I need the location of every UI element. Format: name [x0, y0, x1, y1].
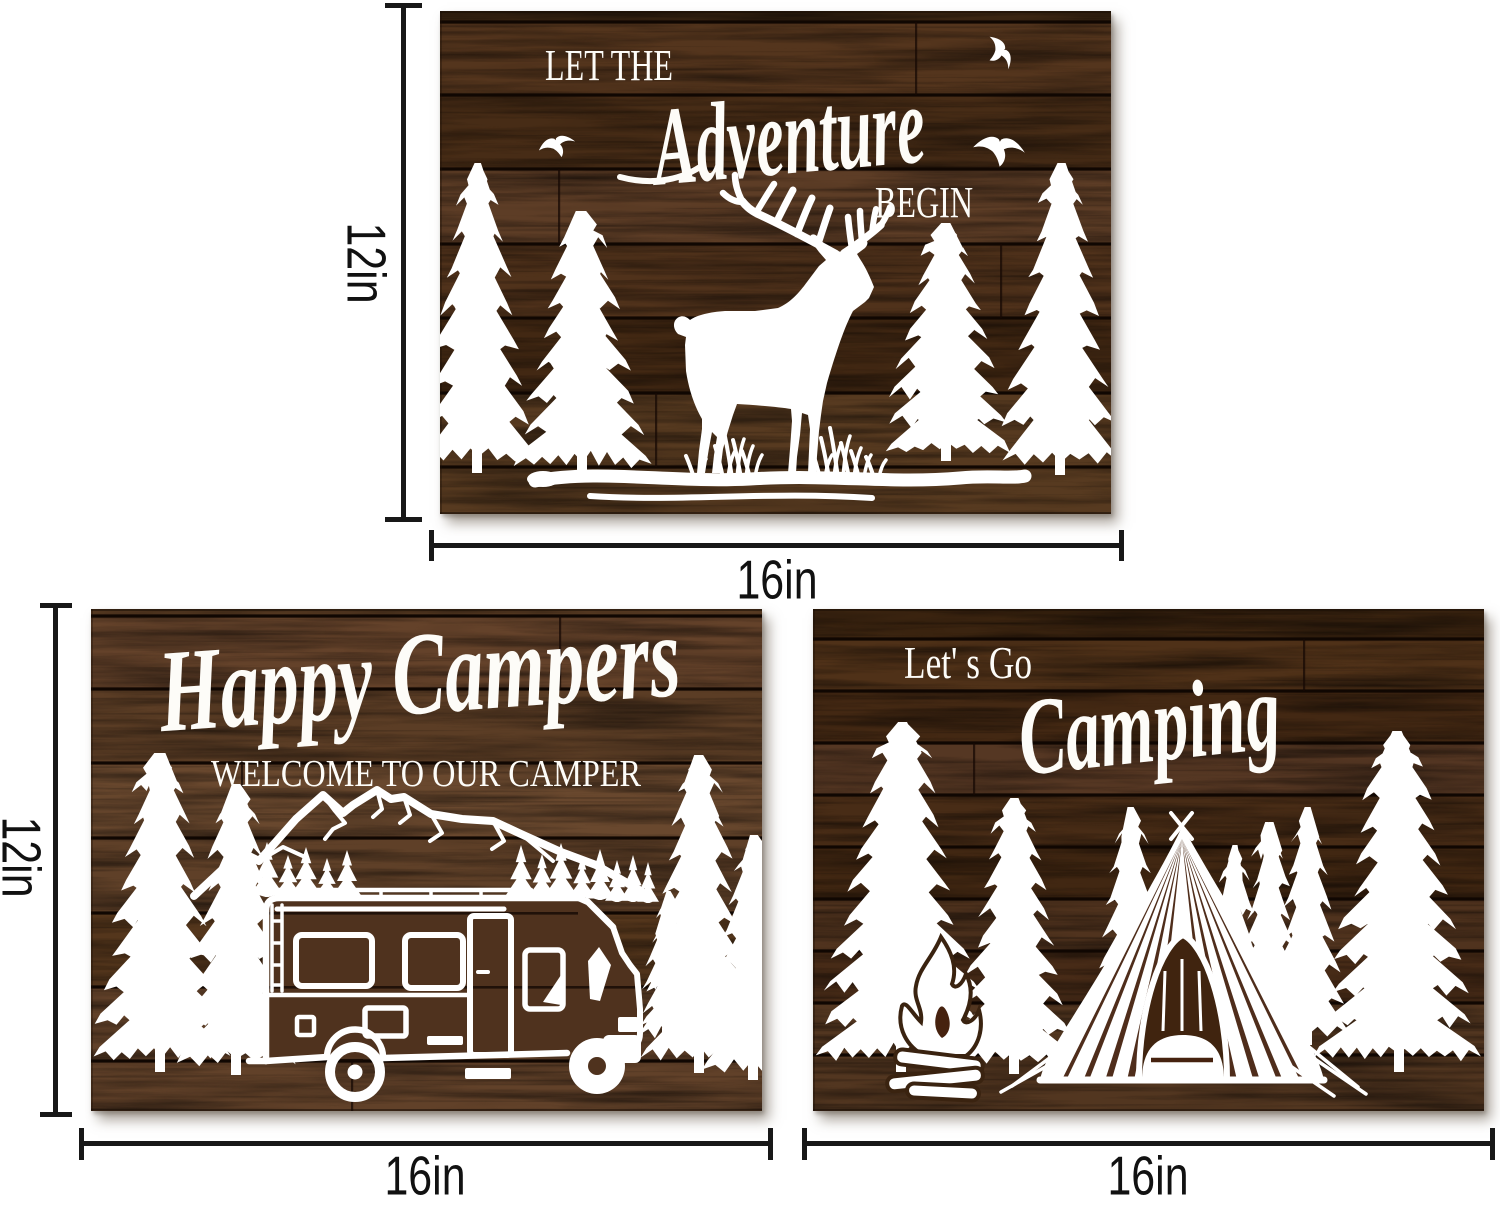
svg-text:LET THE: LET THE: [545, 41, 673, 90]
svg-text:WELCOME TO OUR CAMPER: WELCOME TO OUR CAMPER: [211, 753, 642, 795]
svg-text:Adventure: Adventure: [644, 63, 929, 211]
